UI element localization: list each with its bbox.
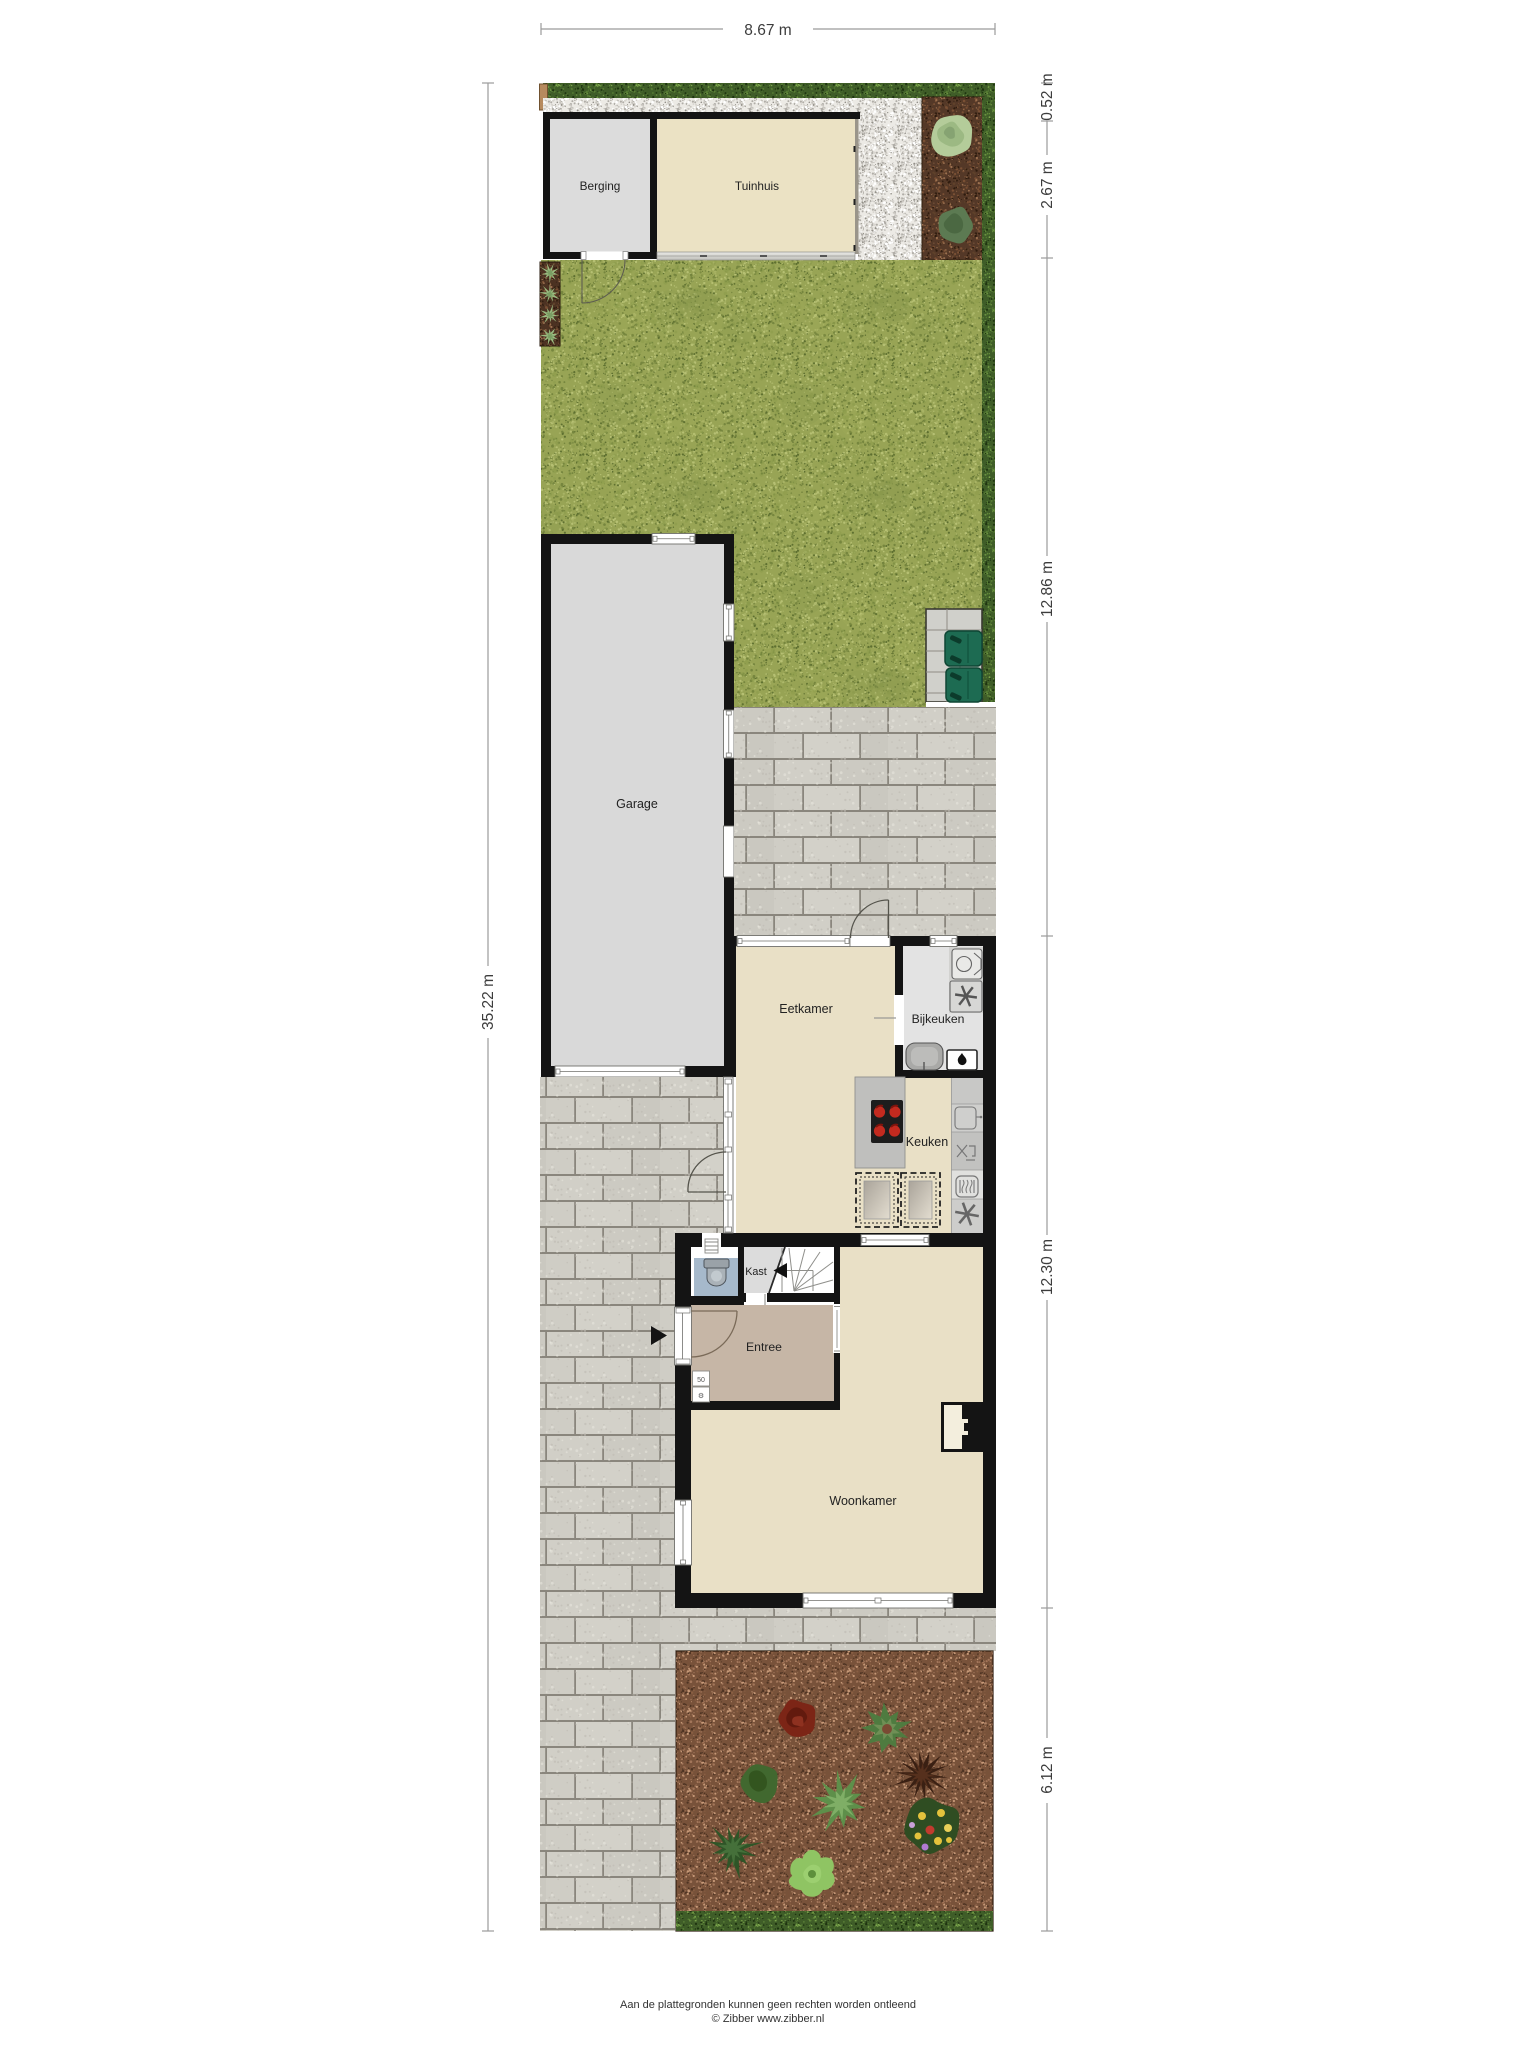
svg-text:⚙: ⚙: [698, 1392, 704, 1400]
svg-text:Woonkamer: Woonkamer: [829, 1494, 896, 1508]
svg-text:Kast: Kast: [745, 1266, 767, 1278]
svg-text:50: 50: [697, 1377, 705, 1384]
svg-text:Berging: Berging: [580, 179, 621, 193]
svg-text:12.30 m: 12.30 m: [1039, 1239, 1056, 1295]
svg-text:8.67 m: 8.67 m: [744, 22, 791, 39]
svg-text:12.86 m: 12.86 m: [1039, 561, 1056, 617]
svg-text:Garage: Garage: [616, 797, 658, 811]
svg-text:© Zibber www.zibber.nl: © Zibber www.zibber.nl: [712, 2013, 825, 2025]
svg-text:0.52 m: 0.52 m: [1039, 73, 1056, 120]
svg-text:Keuken: Keuken: [906, 1135, 948, 1149]
svg-text:Eetkamer: Eetkamer: [779, 1002, 833, 1016]
svg-text:Tuinhuis: Tuinhuis: [735, 179, 779, 193]
svg-text:Aan de plattegronden kunnen ge: Aan de plattegronden kunnen geen rechten…: [620, 1999, 916, 2011]
svg-text:6.12 m: 6.12 m: [1039, 1746, 1056, 1793]
svg-text:Entree: Entree: [746, 1340, 782, 1354]
svg-text:35.22 m: 35.22 m: [480, 974, 497, 1030]
svg-text:Bijkeuken: Bijkeuken: [912, 1012, 965, 1026]
svg-text:2.67 m: 2.67 m: [1039, 161, 1056, 208]
